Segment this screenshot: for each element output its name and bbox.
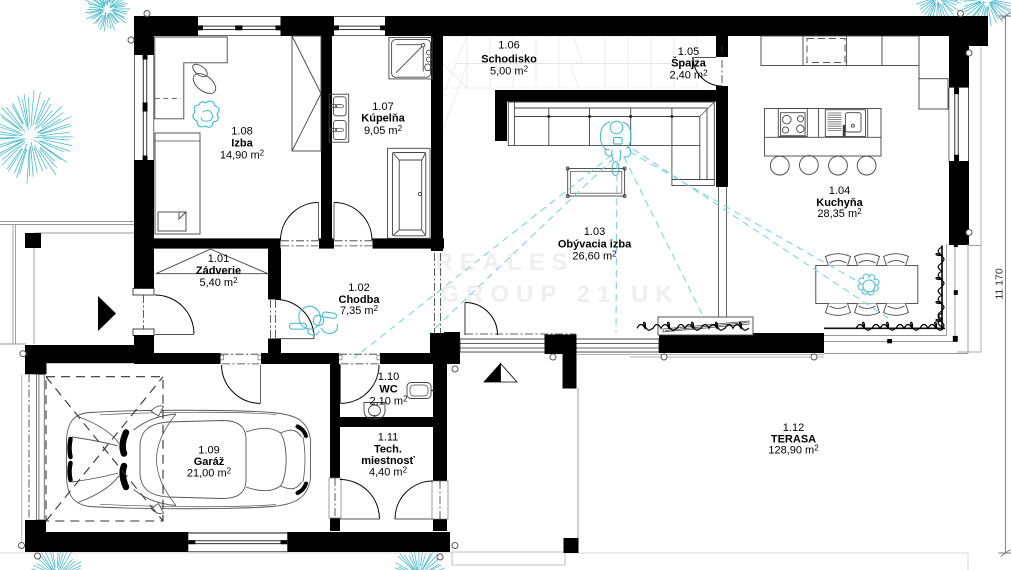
svg-text:11 170: 11 170	[994, 268, 1006, 299]
svg-text:1.08: 1.08	[231, 126, 252, 138]
svg-text:5,00 m2: 5,00 m2	[490, 65, 529, 78]
svg-text:Schodisko: Schodisko	[481, 54, 537, 66]
svg-text:WC: WC	[379, 384, 397, 396]
svg-text:1.01: 1.01	[208, 253, 229, 265]
svg-text:Garáž: Garáž	[194, 456, 225, 468]
svg-text:9,05 m2: 9,05 m2	[364, 124, 403, 137]
svg-text:1.02: 1.02	[348, 282, 369, 294]
svg-text:4,40 m2: 4,40 m2	[369, 466, 408, 479]
svg-text:1.05: 1.05	[678, 46, 699, 58]
svg-text:1.04: 1.04	[829, 185, 850, 197]
svg-text:1.07: 1.07	[372, 101, 393, 113]
svg-text:26,60 m2: 26,60 m2	[572, 250, 617, 263]
svg-text:7,35 m2: 7,35 m2	[340, 304, 379, 317]
svg-text:28,35 m2: 28,35 m2	[817, 207, 862, 220]
svg-text:Izba: Izba	[231, 138, 253, 150]
svg-text:Obývacia izba: Obývacia izba	[558, 239, 632, 251]
svg-text:1.10: 1.10	[378, 371, 399, 383]
svg-text:1.09: 1.09	[198, 445, 219, 457]
svg-text:REALES: REALES	[435, 249, 574, 276]
svg-text:5,40 m2: 5,40 m2	[199, 276, 238, 289]
svg-text:1.06: 1.06	[498, 40, 519, 52]
svg-text:1.11: 1.11	[378, 432, 399, 444]
svg-text:2,40 m2: 2,40 m2	[669, 69, 708, 82]
svg-text:128,90 m2: 128,90 m2	[768, 443, 819, 456]
svg-text:1.03: 1.03	[584, 226, 605, 238]
svg-text:21,00 m2: 21,00 m2	[187, 467, 232, 480]
svg-text:miestnosť: miestnosť	[361, 455, 415, 467]
svg-text:1.12: 1.12	[783, 422, 804, 434]
svg-text:2,10 m2: 2,10 m2	[369, 395, 408, 408]
svg-text:Kúpelňa: Kúpelňa	[361, 113, 405, 125]
svg-text:Špajza: Špajza	[671, 57, 707, 70]
svg-text:Tech.: Tech.	[374, 444, 402, 456]
svg-text:14,90 m2: 14,90 m2	[220, 149, 265, 162]
